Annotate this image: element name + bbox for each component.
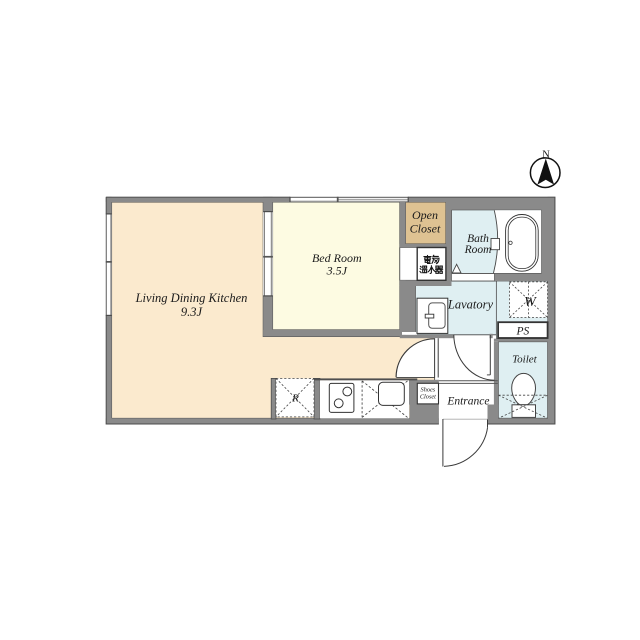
svg-text:Closet: Closet <box>420 393 436 400</box>
svg-text:W: W <box>524 295 537 310</box>
svg-text:Open: Open <box>412 208 438 222</box>
svg-text:Shoes: Shoes <box>421 386 436 393</box>
svg-text:R: R <box>291 393 299 405</box>
svg-text:N: N <box>542 149 550 160</box>
svg-text:Toilet: Toilet <box>512 354 538 366</box>
svg-text:3.5J: 3.5J <box>326 263 348 277</box>
svg-text:PS: PS <box>516 325 530 337</box>
svg-text:Living Dining Kitchen: Living Dining Kitchen <box>135 291 248 305</box>
svg-text:Room: Room <box>464 244 492 256</box>
svg-text:9.3J: 9.3J <box>181 305 204 319</box>
svg-text:Bath: Bath <box>467 233 489 245</box>
svg-text:Lavatory: Lavatory <box>447 298 494 312</box>
svg-text:Entrance: Entrance <box>446 396 489 408</box>
svg-text:Closet: Closet <box>410 222 441 236</box>
